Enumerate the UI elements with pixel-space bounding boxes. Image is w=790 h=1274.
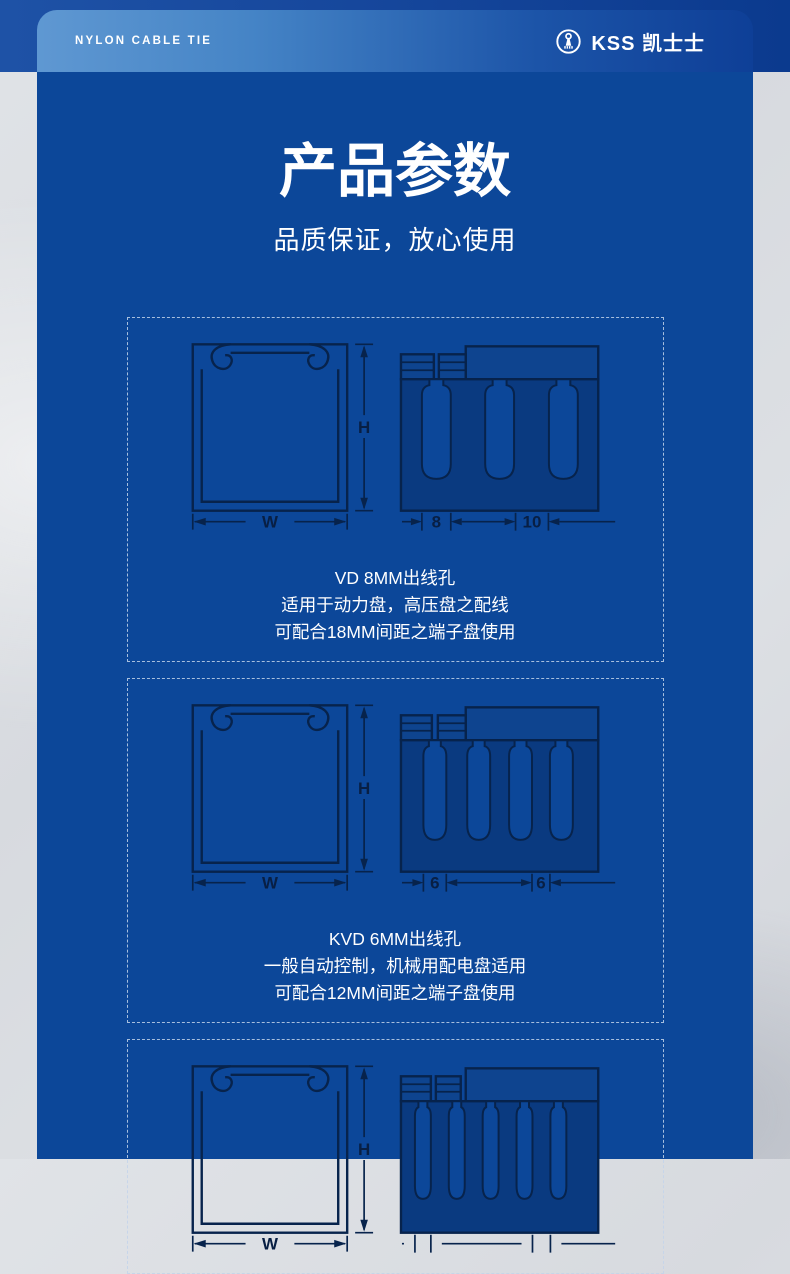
kss-logo-icon: [555, 28, 582, 55]
duct-cross-section-drawing: H W: [192, 705, 372, 892]
dimension-label-h: H: [358, 779, 370, 798]
page-subtitle: 品质保证，放心使用: [37, 224, 753, 256]
spec-section-vd: H W: [127, 317, 664, 662]
caption-line: 可配合18MM间距之端子盘使用: [128, 619, 663, 646]
spec-caption: KVD 6MM出线孔 一般自动控制，机械用配电盘适用 可配合12MM间距之端子盘…: [128, 926, 663, 1007]
brand-name: KSS 凯士士: [591, 27, 705, 56]
duct-cross-section-drawing: H W: [192, 1066, 372, 1253]
header-bar: NYLON CABLE TIE KSS 凯士士: [37, 10, 753, 72]
caption-line: 适用于动力盘，高压盘之配线: [128, 592, 663, 619]
spec-section-kvd: H W: [127, 678, 664, 1023]
dimension-label-w: W: [261, 874, 277, 893]
dimension-label-h: H: [358, 1140, 370, 1159]
caption-line: VD 8MM出线孔: [128, 565, 663, 592]
duct-diagram-vd: H W: [128, 331, 663, 536]
duct-side-view-drawing: 6 6: [400, 707, 614, 892]
dimension-label-slot: 6: [430, 874, 439, 893]
duct-diagram-third: H W: [128, 1053, 663, 1258]
duct-side-view-drawing: 8 10: [400, 346, 614, 531]
caption-line: KVD 6MM出线孔: [128, 926, 663, 953]
duct-side-view-drawing: [400, 1068, 614, 1252]
dimension-label-slot: 8: [431, 513, 440, 532]
brand-lockup: KSS 凯士士: [555, 27, 705, 56]
duct-cross-section-drawing: H W: [192, 344, 372, 531]
header-tagline: NYLON CABLE TIE: [75, 35, 212, 47]
content-panel: 产品参数 品质保证，放心使用 H W: [37, 72, 753, 1159]
dimension-label-h: H: [358, 418, 370, 437]
duct-diagram-kvd: H W: [128, 692, 663, 897]
dimension-label-pitch: 6: [536, 874, 545, 893]
spec-caption: VD 8MM出线孔 适用于动力盘，高压盘之配线 可配合18MM间距之端子盘使用: [128, 565, 663, 646]
dimension-label-w: W: [261, 1235, 277, 1254]
caption-line: 可配合12MM间距之端子盘使用: [128, 980, 663, 1007]
spec-section-third: H W: [127, 1039, 664, 1274]
dimension-label-w: W: [261, 513, 277, 532]
page-title: 产品参数: [37, 72, 753, 202]
caption-line: 一般自动控制，机械用配电盘适用: [128, 953, 663, 980]
dimension-label-pitch: 10: [522, 513, 541, 532]
